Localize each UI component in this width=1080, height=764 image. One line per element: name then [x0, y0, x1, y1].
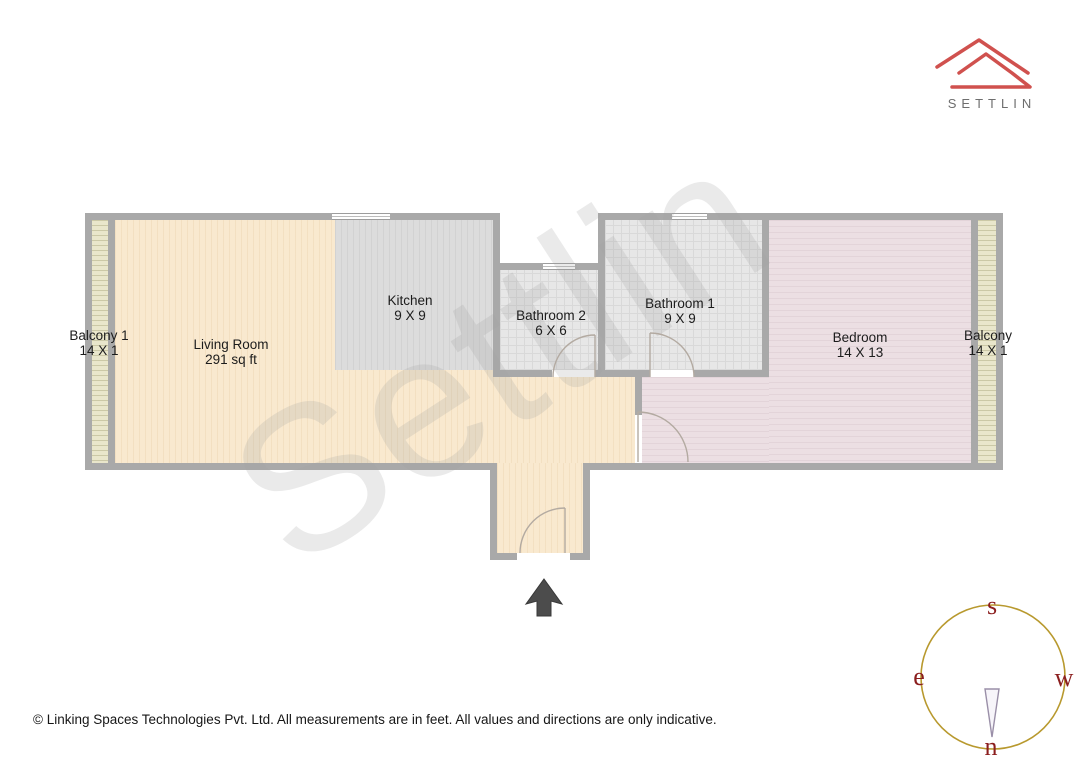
wall	[493, 213, 500, 377]
wall	[490, 553, 517, 560]
wall	[598, 213, 605, 377]
compass-west-label: w	[1055, 663, 1074, 692]
room-dims: 291 sq ft	[193, 352, 268, 367]
room-dims: 14 X 1	[69, 343, 128, 358]
compass-needle-icon	[985, 689, 999, 737]
room-name: Balcony 1	[69, 328, 128, 343]
room-label-bathroom-2: Bathroom 2 6 X 6	[516, 308, 586, 339]
room-name: Bathroom 2	[516, 308, 586, 323]
wall	[762, 213, 769, 377]
bathroom-1-floor	[605, 220, 762, 370]
wall	[694, 370, 769, 377]
room-dims: 9 X 9	[645, 311, 715, 326]
room-name: Living Room	[193, 337, 268, 352]
room-label-bathroom-1: Bathroom 1 9 X 9	[645, 296, 715, 327]
compass-east-label: e	[913, 662, 925, 691]
wall	[493, 370, 552, 377]
room-dims: 9 X 9	[387, 308, 432, 323]
copyright-notice: © Linking Spaces Technologies Pvt. Ltd. …	[33, 712, 717, 727]
settlin-logo-icon	[930, 30, 1040, 92]
room-label-living-room: Living Room 291 sq ft	[193, 337, 268, 368]
room-dims: 14 X 13	[833, 345, 888, 360]
bathroom-1-window	[672, 213, 707, 220]
room-name: Bathroom 1	[645, 296, 715, 311]
bedroom-floor-ext	[642, 377, 769, 463]
wall	[635, 377, 642, 415]
brand-name: SETTLIN	[933, 96, 1051, 111]
wall	[85, 213, 500, 220]
hallway-floor	[493, 377, 635, 463]
room-name: Kitchen	[387, 293, 432, 308]
compass-north-label: n	[985, 732, 998, 761]
floor-plan-page: SETTLIN Settlin Bal	[0, 0, 1080, 764]
room-dims: 14 X 1	[964, 343, 1012, 358]
room-label-bedroom: Bedroom 14 X 13	[833, 330, 888, 361]
wall	[598, 213, 1003, 220]
room-dims: 6 X 6	[516, 323, 586, 338]
wall	[583, 463, 590, 560]
wall	[490, 463, 497, 560]
foyer-floor	[497, 463, 583, 553]
room-label-balcony-1: Balcony 1 14 X 1	[69, 328, 128, 359]
entrance-arrow-icon	[526, 579, 562, 616]
room-label-kitchen: Kitchen 9 X 9	[387, 293, 432, 324]
compass-south-label: s	[987, 591, 997, 620]
room-label-balcony-2: Balcony 14 X 1	[964, 328, 1012, 359]
bathroom-2-window	[543, 263, 575, 270]
compass-icon: s e w n	[905, 588, 1080, 764]
wall	[85, 463, 497, 470]
kitchen-window	[332, 213, 390, 220]
wall	[595, 370, 650, 377]
room-name: Bedroom	[833, 330, 888, 345]
wall	[583, 463, 1003, 470]
room-name: Balcony	[964, 328, 1012, 343]
wall	[570, 553, 590, 560]
